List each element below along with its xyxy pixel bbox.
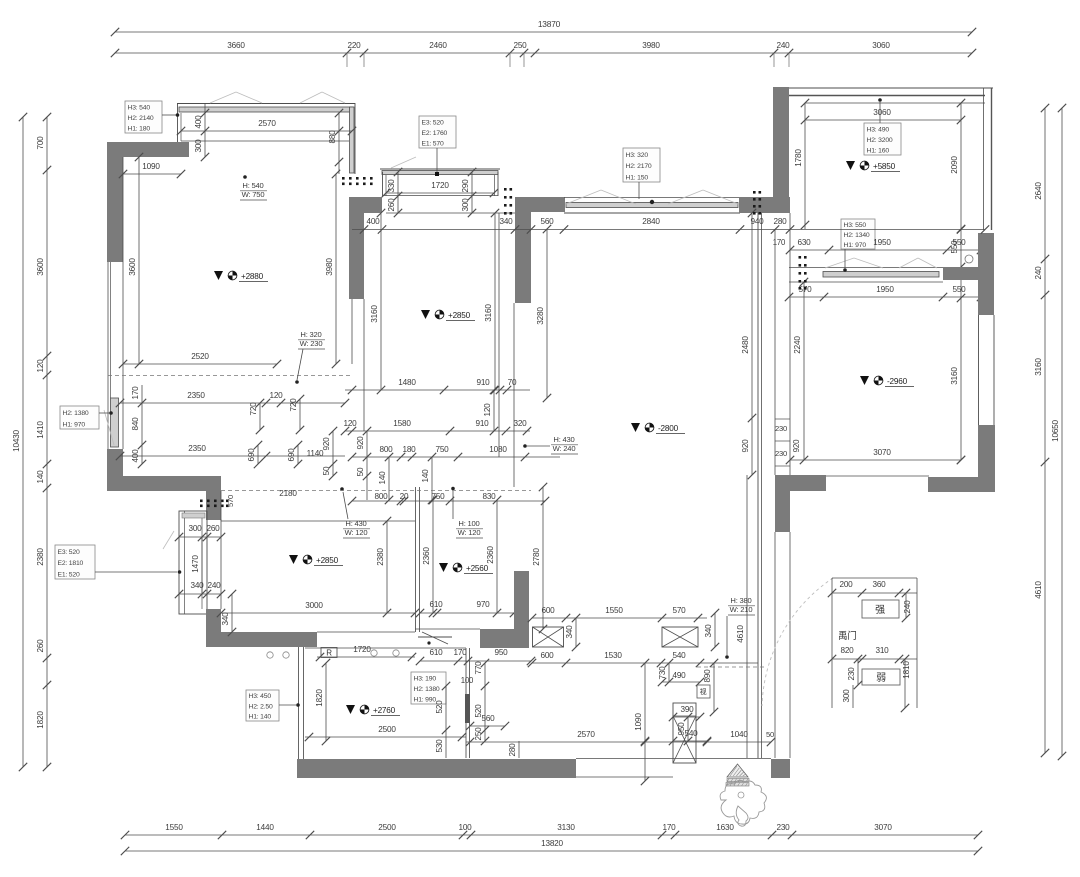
svg-text:W: 120: W: 120 [458, 528, 481, 537]
svg-text:170: 170 [662, 823, 676, 832]
svg-text:E1: 520: E1: 520 [58, 572, 80, 579]
svg-text:2570: 2570 [577, 730, 595, 739]
svg-text:3980: 3980 [642, 41, 660, 50]
svg-text:3130: 3130 [557, 823, 575, 832]
svg-text:940: 940 [750, 217, 764, 226]
svg-text:3600: 3600 [36, 258, 45, 276]
svg-text:290: 290 [461, 179, 470, 193]
svg-text:250: 250 [474, 727, 483, 741]
svg-text:230: 230 [776, 823, 790, 832]
svg-text:E3: 520: E3: 520 [422, 119, 444, 126]
svg-text:2460: 2460 [429, 41, 447, 50]
svg-text:W: 230: W: 230 [300, 339, 323, 348]
svg-text:H2: 2.50: H2: 2.50 [249, 703, 274, 710]
svg-text:3160: 3160 [370, 305, 379, 323]
svg-text:570: 570 [672, 606, 686, 615]
svg-text:800: 800 [379, 445, 393, 454]
svg-text:100: 100 [458, 823, 472, 832]
svg-text:H1: 180: H1: 180 [128, 126, 151, 133]
svg-text:300: 300 [842, 689, 851, 703]
svg-text:2570: 2570 [258, 119, 276, 128]
svg-text:610: 610 [429, 600, 443, 609]
svg-text:E3: 520: E3: 520 [58, 549, 80, 556]
svg-text:240: 240 [776, 41, 790, 50]
svg-text:260: 260 [387, 198, 396, 212]
svg-text:600: 600 [541, 606, 555, 615]
svg-text:3160: 3160 [950, 367, 959, 385]
svg-text:950: 950 [494, 648, 508, 657]
svg-text:1950: 1950 [876, 285, 894, 294]
svg-text:H: 380: H: 380 [730, 596, 751, 605]
svg-text:170: 170 [453, 648, 467, 657]
svg-text:H2: 2170: H2: 2170 [626, 163, 652, 170]
svg-text:920: 920 [356, 436, 365, 450]
svg-text:230: 230 [775, 424, 787, 433]
svg-text:13870: 13870 [538, 19, 561, 29]
svg-text:H1: 160: H1: 160 [867, 148, 890, 155]
svg-text:1810: 1810 [902, 661, 911, 679]
svg-text:140: 140 [421, 469, 430, 483]
svg-text:H: 430: H: 430 [553, 435, 574, 444]
svg-text:1720: 1720 [353, 645, 371, 654]
svg-text:320: 320 [513, 419, 527, 428]
svg-text:+2850: +2850 [316, 556, 339, 565]
svg-text:170: 170 [131, 386, 140, 400]
svg-text:600: 600 [540, 651, 554, 660]
svg-text:250: 250 [513, 41, 527, 50]
svg-text:H1: 140: H1: 140 [249, 714, 272, 721]
svg-text:2180: 2180 [279, 489, 297, 498]
svg-text:W: 120: W: 120 [345, 528, 368, 537]
svg-text:260: 260 [206, 524, 220, 533]
svg-text:400: 400 [366, 217, 380, 226]
svg-text:1410: 1410 [36, 421, 45, 439]
svg-text:2350: 2350 [187, 391, 205, 400]
svg-text:520: 520 [435, 700, 444, 714]
svg-text:R: R [326, 649, 332, 658]
svg-text:720: 720 [289, 398, 298, 412]
svg-text:H2: 1380: H2: 1380 [63, 410, 89, 417]
svg-text:910: 910 [475, 419, 489, 428]
svg-text:100: 100 [461, 676, 474, 685]
svg-text:H1: 990: H1: 990 [414, 697, 437, 704]
svg-text:3160: 3160 [1034, 358, 1043, 376]
svg-text:3160: 3160 [484, 304, 493, 322]
svg-text:700: 700 [36, 136, 45, 150]
svg-text:390: 390 [680, 705, 694, 714]
svg-text:1080: 1080 [489, 445, 507, 454]
svg-text:1820: 1820 [36, 711, 45, 729]
svg-text:2090: 2090 [950, 156, 959, 174]
svg-text:2640: 2640 [1034, 182, 1043, 200]
svg-text:H2: 1340: H2: 1340 [844, 232, 870, 239]
svg-text:830: 830 [482, 492, 496, 501]
svg-text:220: 220 [347, 41, 361, 50]
svg-text:+2880: +2880 [241, 272, 264, 281]
svg-text:280: 280 [773, 217, 787, 226]
svg-text:2380: 2380 [36, 548, 45, 566]
svg-text:400: 400 [194, 115, 203, 129]
svg-text:120: 120 [269, 391, 283, 400]
svg-text:2500: 2500 [378, 823, 396, 832]
svg-text:2360: 2360 [486, 546, 495, 564]
svg-text:630: 630 [797, 238, 811, 247]
svg-text:560: 560 [481, 714, 495, 723]
svg-text:2240: 2240 [793, 336, 802, 354]
svg-text:200: 200 [839, 580, 853, 589]
svg-text:300: 300 [461, 198, 470, 212]
svg-text:H1: 150: H1: 150 [626, 175, 649, 182]
svg-text:1470: 1470 [191, 555, 200, 573]
svg-text:+2850: +2850 [448, 311, 471, 320]
svg-text:10650: 10650 [1051, 419, 1060, 441]
svg-text:50: 50 [766, 730, 774, 739]
svg-text:690: 690 [247, 448, 256, 462]
svg-text:E1: 570: E1: 570 [422, 141, 444, 148]
svg-text:230: 230 [847, 667, 856, 681]
svg-text:120: 120 [483, 403, 492, 417]
svg-text:610: 610 [429, 648, 443, 657]
svg-text:360: 360 [872, 580, 886, 589]
svg-text:H1: 970: H1: 970 [63, 421, 86, 428]
svg-text:230: 230 [775, 449, 787, 458]
svg-text:340: 340 [499, 217, 513, 226]
svg-text:1780: 1780 [794, 149, 803, 167]
svg-text:强: 强 [875, 604, 885, 616]
svg-text:20: 20 [400, 492, 409, 501]
svg-text:2360: 2360 [422, 547, 431, 565]
svg-text:690: 690 [287, 448, 296, 462]
svg-text:560: 560 [540, 217, 554, 226]
svg-text:720: 720 [249, 402, 258, 416]
svg-text:2780: 2780 [532, 548, 541, 566]
svg-text:+2760: +2760 [373, 706, 396, 715]
svg-text:970: 970 [476, 600, 490, 609]
svg-text:3280: 3280 [536, 307, 545, 325]
svg-text:弱: 弱 [876, 672, 886, 684]
svg-text:280: 280 [508, 743, 517, 757]
svg-text:180: 180 [402, 445, 416, 454]
svg-text:E2: 1760: E2: 1760 [422, 130, 448, 137]
svg-text:H3: 190: H3: 190 [414, 675, 437, 682]
svg-text:1090: 1090 [142, 162, 160, 171]
svg-text:1550: 1550 [165, 823, 183, 832]
svg-text:920: 920 [792, 439, 801, 452]
svg-text:800: 800 [374, 492, 388, 501]
svg-text:H3: 550: H3: 550 [844, 222, 867, 229]
svg-text:2350: 2350 [188, 444, 206, 453]
svg-text:H: 100: H: 100 [458, 519, 479, 528]
svg-text:W: 210: W: 210 [730, 605, 753, 614]
svg-text:4610: 4610 [1034, 581, 1043, 599]
svg-text:310: 310 [875, 646, 889, 655]
svg-text:3060: 3060 [872, 41, 890, 50]
svg-text:300: 300 [188, 524, 202, 533]
svg-text:H1: 970: H1: 970 [844, 242, 867, 249]
svg-text:H2: 2140: H2: 2140 [128, 115, 154, 122]
svg-text:1630: 1630 [716, 823, 734, 832]
svg-text:2520: 2520 [191, 352, 209, 361]
svg-text:920: 920 [322, 437, 331, 451]
svg-text:H: 430: H: 430 [345, 519, 366, 528]
svg-text:H: 540: H: 540 [242, 181, 263, 190]
svg-text:H2: 1380: H2: 1380 [414, 686, 440, 693]
svg-text:H3: 450: H3: 450 [249, 693, 272, 700]
svg-text:E2: 1810: E2: 1810 [58, 560, 84, 567]
svg-text:3070: 3070 [873, 448, 891, 457]
svg-text:3660: 3660 [227, 41, 245, 50]
svg-text:240: 240 [903, 600, 912, 614]
svg-text:1720: 1720 [431, 181, 449, 190]
svg-text:920: 920 [741, 439, 750, 453]
svg-text:13820: 13820 [541, 839, 563, 848]
svg-text:550: 550 [952, 285, 966, 294]
svg-text:750: 750 [435, 445, 449, 454]
svg-text:H2: 3200: H2: 3200 [867, 137, 893, 144]
svg-text:-2800: -2800 [658, 424, 679, 433]
svg-text:3060: 3060 [873, 108, 891, 117]
svg-text:140: 140 [36, 470, 45, 484]
svg-text:540: 540 [672, 651, 686, 660]
svg-text:140: 140 [378, 471, 387, 485]
svg-text:50: 50 [322, 466, 331, 475]
svg-text:820: 820 [840, 646, 854, 655]
svg-text:70: 70 [508, 378, 517, 387]
svg-text:+5850: +5850 [873, 162, 896, 171]
svg-text:240: 240 [207, 581, 221, 590]
svg-text:490: 490 [672, 671, 686, 680]
svg-text:1580: 1580 [393, 419, 411, 428]
svg-text:730: 730 [658, 666, 667, 680]
svg-text:1820: 1820 [315, 689, 324, 707]
svg-text:H: 320: H: 320 [300, 330, 321, 339]
svg-text:50: 50 [356, 467, 365, 476]
svg-text:2380: 2380 [376, 548, 385, 566]
svg-text:840: 840 [131, 417, 140, 431]
svg-text:340: 340 [221, 612, 230, 626]
svg-text:2840: 2840 [642, 217, 660, 226]
svg-text:W: 240: W: 240 [553, 444, 576, 453]
svg-text:视: 视 [700, 687, 707, 696]
svg-text:240: 240 [1034, 266, 1043, 280]
svg-text:1440: 1440 [256, 823, 274, 832]
svg-text:570: 570 [226, 495, 235, 507]
svg-text:1480: 1480 [398, 378, 416, 387]
svg-text:禹门: 禹门 [838, 630, 857, 642]
svg-text:1040: 1040 [730, 730, 748, 739]
svg-text:880: 880 [328, 130, 337, 144]
svg-text:4610: 4610 [736, 625, 745, 643]
svg-text:300: 300 [194, 139, 203, 153]
svg-text:340: 340 [704, 624, 713, 638]
svg-text:340: 340 [565, 625, 574, 639]
svg-text:W: 750: W: 750 [242, 190, 265, 199]
svg-text:1530: 1530 [604, 651, 622, 660]
svg-text:3980: 3980 [325, 258, 334, 276]
svg-text:770: 770 [474, 661, 483, 675]
svg-text:120: 120 [343, 419, 357, 428]
svg-text:10430: 10430 [12, 429, 21, 451]
svg-text:910: 910 [476, 378, 490, 387]
svg-text:120: 120 [36, 359, 45, 373]
svg-text:H3: 320: H3: 320 [626, 152, 649, 159]
svg-text:260: 260 [36, 639, 45, 653]
svg-text:340: 340 [190, 581, 204, 590]
svg-text:H3: 490: H3: 490 [867, 126, 890, 133]
svg-text:+2560: +2560 [466, 564, 489, 573]
svg-text:H3: 540: H3: 540 [128, 104, 151, 111]
svg-text:1950: 1950 [873, 238, 891, 247]
svg-text:1090: 1090 [634, 713, 643, 731]
svg-text:2500: 2500 [378, 725, 396, 734]
svg-text:890: 890 [703, 669, 712, 683]
svg-text:3600: 3600 [128, 258, 137, 276]
svg-text:3070: 3070 [874, 823, 892, 832]
svg-text:1550: 1550 [605, 606, 623, 615]
svg-text:3000: 3000 [305, 601, 323, 610]
svg-text:2480: 2480 [741, 336, 750, 354]
svg-text:530: 530 [435, 739, 444, 753]
svg-text:-2960: -2960 [887, 377, 908, 386]
svg-text:550: 550 [952, 238, 966, 247]
